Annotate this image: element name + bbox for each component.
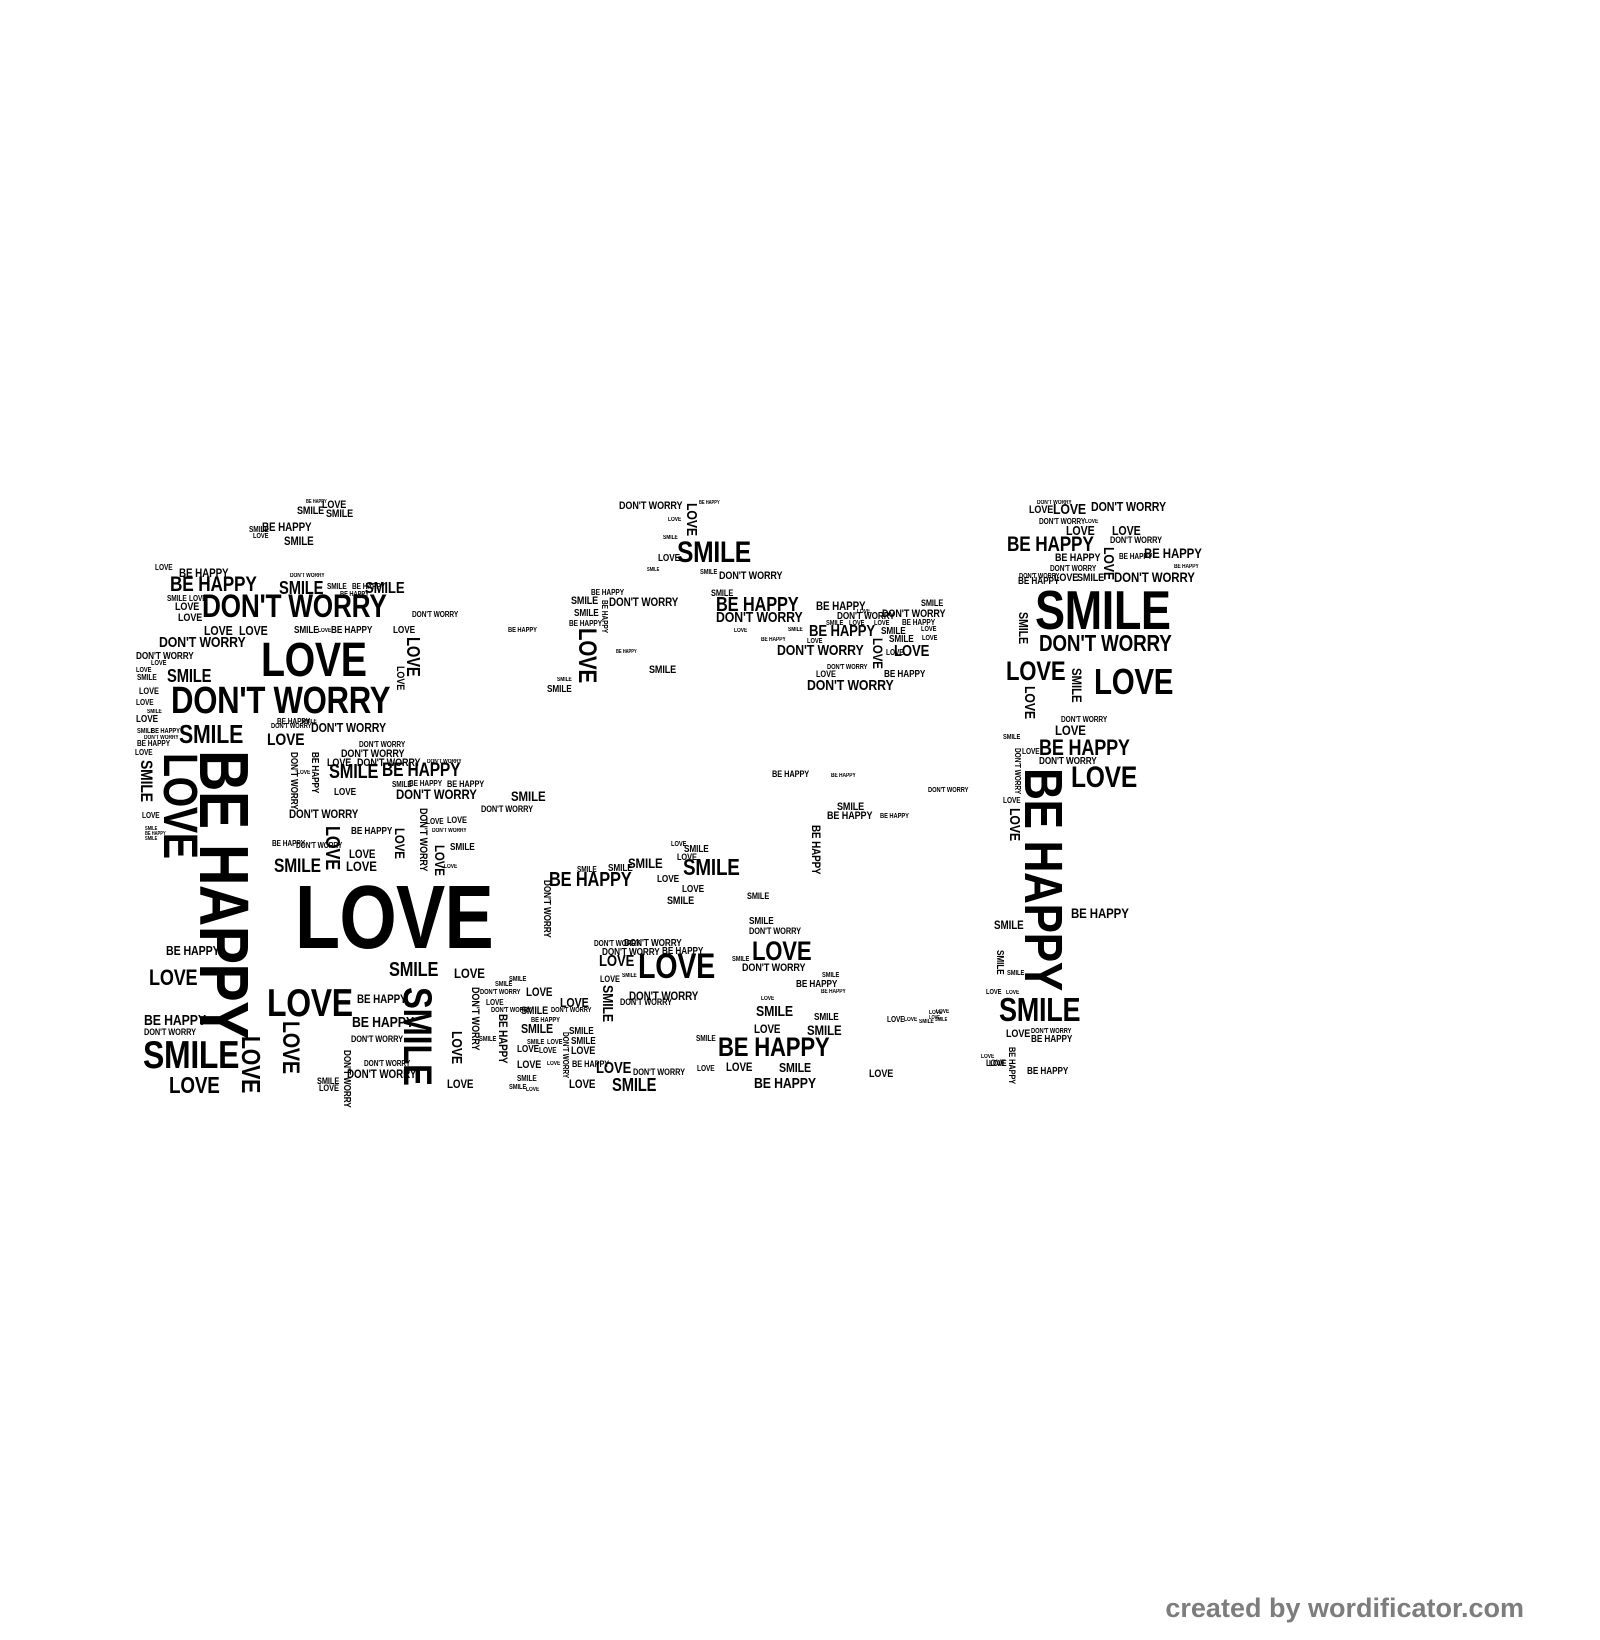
cloud-word: BE HAPPY — [810, 825, 820, 875]
cloud-word: DON'T WORRY — [347, 1070, 416, 1080]
cloud-word: BE HAPPY — [1031, 1036, 1072, 1044]
cloud-word: SMILE — [521, 1024, 553, 1034]
cloud-word: BE HAPPY — [144, 1015, 206, 1027]
cloud-word: SMILE — [569, 1028, 594, 1036]
cloud-word: LOVE — [1006, 1030, 1030, 1039]
cloud-word: BE HAPPY — [616, 650, 637, 654]
cloud-word: LOVE — [1053, 504, 1086, 516]
cloud-word: LOVE — [1071, 766, 1137, 790]
cloud-word: BE HAPPY — [1027, 1068, 1068, 1076]
cloud-word: LOVE — [169, 1076, 220, 1094]
cloud-word: LOVE — [149, 969, 197, 987]
cloud-word: LOVE — [1102, 547, 1114, 580]
cloud-word: SMILE — [935, 1018, 947, 1022]
cloud-word: LOVE — [1023, 686, 1035, 719]
cloud-word: SMILE — [994, 921, 1024, 931]
cloud-word: LOVE — [571, 1047, 595, 1056]
cloud-word: LOVE — [922, 636, 937, 642]
cloud-word: BE HAPPY — [1008, 1047, 1015, 1084]
cloud-word: BE HAPPY — [382, 763, 460, 778]
cloud-word: LOVE — [657, 876, 679, 884]
cloud-word: LOVE — [261, 642, 367, 680]
cloud-word: BE HAPPY — [262, 523, 312, 533]
cloud-word: LOVE — [569, 1080, 595, 1090]
cloud-word: BE HAPPY — [754, 1078, 816, 1090]
cloud-word: BE HAPPY — [351, 828, 392, 836]
cloud-word: LOVE — [904, 1018, 917, 1023]
cloud-word: BE HAPPY — [809, 626, 875, 639]
cloud-word: LOVE — [560, 998, 589, 1008]
cloud-word: LOVE — [526, 1088, 539, 1093]
cloud-word: BE HAPPY — [1144, 548, 1202, 559]
cloud-word: SMILE — [389, 962, 438, 978]
cloud-word: BE HAPPY — [699, 501, 720, 505]
cloud-word: SMILE — [511, 791, 546, 802]
cloud-word: BE HAPPY — [772, 771, 809, 778]
cloud-word: SMILE — [1007, 971, 1024, 977]
cloud-word: DON'T WORRY — [171, 686, 390, 716]
cloud-word: BE HAPPY — [827, 812, 872, 821]
cloud-word: BE HAPPY — [508, 628, 537, 634]
cloud-word: BE HAPPY — [151, 729, 180, 735]
cloud-word: BE HAPPY — [497, 1014, 507, 1064]
cloud-word: SMILE — [788, 628, 803, 633]
cloud-word: LOVE — [136, 716, 158, 724]
cloud-word: LOVE — [334, 789, 356, 797]
cloud-word: SMILE — [1018, 612, 1028, 644]
cloud-word: BE HAPPY — [569, 621, 602, 627]
cloud-word: DON'T WORRY — [311, 723, 386, 733]
cloud-word: LOVE — [135, 750, 153, 756]
cloud-word: DON'T WORRY — [202, 594, 387, 620]
cloud-word: SMILE — [517, 1076, 537, 1082]
cloud-word: LOVE — [682, 886, 704, 894]
cloud-word: BE HAPPY — [352, 1017, 414, 1029]
cloud-word: DON'T WORRY — [432, 829, 467, 834]
cloud-word: LOVE — [547, 1062, 560, 1067]
cloud-word: LOVE — [151, 661, 166, 667]
cloud-word: DON'T WORRY — [481, 806, 533, 813]
cloud-word: BE HAPPY — [166, 946, 220, 956]
cloud-word: BE HAPPY — [796, 981, 837, 989]
cloud-word: LOVE — [517, 1061, 541, 1070]
cloud-word: SMILE — [284, 537, 314, 547]
cloud-word: SMILE — [601, 985, 613, 1022]
cloud-word: BE HAPPY — [1119, 554, 1152, 560]
cloud-word: SMILE — [995, 950, 1003, 975]
cloud-word: LOVE — [297, 771, 310, 776]
cloud-word: SMILE — [647, 568, 659, 572]
cloud-word: LOVE — [295, 882, 493, 954]
cloud-word: BE HAPPY — [1071, 908, 1129, 919]
cloud-word: DON'T WORRY — [1091, 502, 1166, 512]
cloud-word: DON'T WORRY — [620, 999, 672, 1006]
cloud-word: LOVE — [319, 1085, 339, 1092]
cloud-word: SMILE — [297, 507, 324, 516]
cloud-word: LOVE — [726, 1063, 752, 1073]
cloud-word: SMILE — [574, 610, 599, 618]
cloud-word: SMILE — [1071, 668, 1082, 703]
cloud-word: SMILE — [479, 1037, 496, 1043]
cloud-word: LOVE — [1029, 506, 1053, 515]
cloud-word: SMILE — [509, 1085, 526, 1091]
cloud-word: SMILE — [700, 570, 717, 576]
cloud-word: SMILE — [732, 957, 749, 963]
cloud-word: LOVE — [454, 968, 485, 979]
cloud-word: LOVE — [267, 733, 304, 747]
cloud-word: LOVE — [1006, 661, 1065, 683]
cloud-word: SMILE — [822, 973, 839, 979]
cloud-word: LOVE — [204, 626, 233, 636]
cloud-word: LOVE — [989, 1061, 1007, 1067]
cloud-word: SMILE — [663, 536, 678, 541]
cloud-word: SMILE — [747, 893, 769, 900]
cloud-word: BE HAPPY — [357, 995, 407, 1005]
cloud-word: SMILE — [527, 1040, 544, 1046]
cloud-word: SMILE — [329, 764, 378, 780]
cloud-word: SMILE — [756, 1006, 793, 1018]
cloud-word: SMILE — [612, 1078, 656, 1092]
cloud-word: LOVE — [267, 988, 353, 1019]
cloud-word: LOVE — [526, 988, 552, 998]
cloud-word: LOVE — [178, 614, 202, 623]
word-art-canvas: LOVESMILESMILEBE HAPPYSMILEBE HAPPYLOVES… — [0, 0, 1600, 1640]
cloud-word: BE HAPPY — [662, 948, 703, 956]
cloud-word: DON'T WORRY — [619, 502, 682, 511]
cloud-word: SMILE — [521, 1007, 548, 1016]
cloud-word: SMILE — [667, 897, 694, 906]
cloud-word: LOVE — [136, 700, 154, 706]
cloud-word: LOVE — [155, 565, 173, 571]
cloud-word: DON'T WORRY — [289, 752, 297, 810]
cloud-word: DON'T WORRY — [289, 810, 358, 820]
cloud-word: DON'T WORRY — [609, 598, 678, 608]
cloud-word: LOVE — [517, 1046, 539, 1054]
cloud-word: LOVE — [1022, 749, 1040, 755]
cloud-word: SMILE — [1035, 588, 1171, 632]
cloud-word: BE HAPPY — [1055, 554, 1100, 563]
cloud-word: SMILE — [577, 867, 597, 873]
cloud-word: BE HAPPY — [196, 750, 252, 1039]
cloud-word: BE HAPPY — [549, 872, 632, 888]
cloud-word: LOVE — [685, 503, 697, 536]
cloud-word: LOVE — [426, 819, 444, 825]
cloud-word: SMILE — [999, 997, 1080, 1023]
cloud-word: BE HAPPY — [1021, 768, 1064, 991]
cloud-word: DON'T WORRY — [602, 949, 660, 957]
cloud-word: LOVE — [1008, 808, 1020, 841]
cloud-word: LOVE — [142, 813, 160, 819]
cloud-word: SMILE — [921, 600, 943, 607]
cloud-word: DON'T WORRY — [271, 724, 311, 730]
cloud-word: LOVE — [677, 854, 697, 861]
cloud-word: DON'T WORRY — [1039, 634, 1172, 652]
cloud-word: BE HAPPY — [1039, 739, 1130, 757]
cloud-word: LOVE — [872, 638, 883, 669]
cloud-word: DON'T WORRY — [351, 1036, 403, 1043]
cloud-word: LOVE — [324, 826, 340, 870]
cloud-word: LOVE — [761, 997, 774, 1002]
cloud-word: SMILE — [1003, 735, 1020, 741]
cloud-word: SMILE — [814, 1014, 839, 1022]
cloud-word: LOVE — [921, 627, 936, 633]
cloud-word: DON'T WORRY — [480, 990, 520, 996]
cloud-word: SMILE — [779, 1063, 811, 1073]
cloud-word: SMILE — [749, 918, 774, 926]
cloud-word: LOVE — [697, 1066, 715, 1072]
cloud-word: BE HAPPY — [137, 741, 170, 747]
cloud-word: LOVE — [577, 628, 597, 683]
cloud-word: LOVE — [240, 1036, 261, 1093]
cloud-word: BE HAPPY — [310, 752, 318, 793]
cloud-word: LOVE — [139, 688, 159, 695]
cloud-word: SMILE — [179, 724, 243, 745]
cloud-word: SMILE — [696, 1036, 716, 1042]
cloud-word: LOVE — [394, 828, 405, 859]
cloud-word: BE HAPPY — [306, 500, 327, 504]
cloud-word: LOVE — [668, 518, 681, 523]
cloud-word: LOVE — [447, 817, 467, 824]
cloud-word: SMILE — [649, 666, 676, 675]
cloud-word: SMILE — [326, 510, 353, 519]
cloud-word: LOVE — [539, 1048, 557, 1054]
cloud-word: SMILE — [677, 541, 751, 565]
cloud-word: LOVE — [447, 1080, 473, 1090]
cloud-word: LOVE — [175, 603, 199, 612]
cloud-word: LOVE — [1003, 798, 1021, 804]
cloud-word: LOVE — [281, 1021, 300, 1074]
cloud-word: LOVE — [393, 627, 415, 635]
cloud-word: DON'T WORRY — [470, 987, 479, 1050]
cloud-word: SMILE — [143, 1040, 239, 1071]
cloud-word: BE HAPPY — [531, 1018, 560, 1024]
watermark-credit: created by wordificator.com — [1165, 1593, 1524, 1624]
cloud-word: SMILE — [622, 974, 637, 979]
cloud-word: SMILE — [137, 675, 157, 681]
cloud-word: BE HAPPY — [821, 990, 846, 995]
cloud-word: DON'T WORRY — [719, 572, 782, 581]
cloud-word: DON'T WORRY — [716, 612, 803, 624]
cloud-word: BE HAPPY — [831, 774, 856, 779]
cloud-word: SMILE — [450, 844, 475, 852]
cloud-word: SMILE — [495, 982, 512, 988]
cloud-word: LOVE — [253, 534, 268, 540]
cloud-word: SMILE — [139, 760, 153, 802]
cloud-word: DON'T WORRY — [749, 928, 801, 935]
cloud-word: LOVE — [894, 646, 929, 659]
cloud-word: LOVE — [596, 1063, 631, 1076]
cloud-word: DON'T WORRY — [777, 645, 864, 657]
cloud-word: BE HAPPY — [601, 600, 607, 633]
cloud-word: DON'T WORRY — [562, 1032, 568, 1078]
cloud-word: LOVE — [450, 1031, 462, 1064]
cloud-word: DON'T WORRY — [542, 880, 550, 938]
cloud-word: DON'T WORRY — [807, 680, 894, 692]
cloud-word: DON'T WORRY — [742, 964, 805, 973]
cloud-word: SMILE — [571, 597, 598, 606]
cloud-word: LOVE — [887, 1017, 905, 1023]
cloud-word: LOVE — [1094, 668, 1173, 697]
cloud-word: DON'T WORRY — [396, 789, 477, 800]
cloud-word: LOVE — [395, 666, 404, 690]
cloud-word: DON'T WORRY — [144, 1029, 196, 1036]
cloud-word: SMILE — [557, 678, 572, 683]
cloud-word: DON'T WORRY — [412, 612, 458, 618]
cloud-word: SMILE — [547, 686, 572, 694]
cloud-word: LOVE — [486, 1000, 504, 1006]
cloud-word: SMILE — [145, 837, 157, 841]
cloud-word: DON'T WORRY — [159, 637, 246, 649]
cloud-word: DON'T WORRY — [1110, 537, 1162, 544]
cloud-word: LOVE — [752, 941, 811, 963]
cloud-word: BE HAPPY — [880, 814, 909, 820]
cloud-word: BE HAPPY — [718, 1037, 829, 1059]
cloud-word: LOVE — [406, 637, 420, 677]
cloud-word: LOVE — [869, 1070, 893, 1079]
cloud-word: DON'T WORRY — [928, 788, 968, 794]
cloud-word: SMILE — [628, 858, 663, 869]
cloud-word: LOVE — [734, 629, 747, 634]
cloud-word: LOVE — [600, 976, 620, 983]
